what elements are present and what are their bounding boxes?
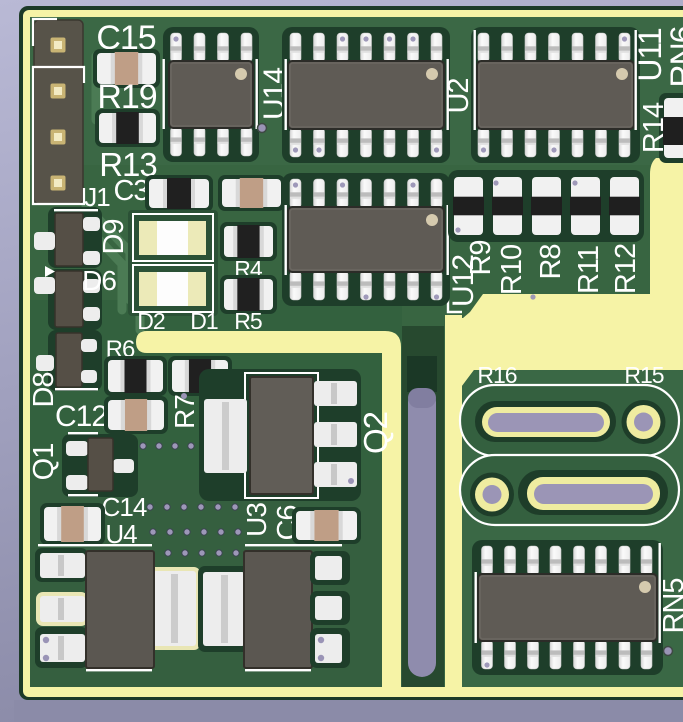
svg-text:D2: D2 [137,308,165,334]
svg-text:D1: D1 [190,308,218,334]
svg-text:R15: R15 [624,362,663,388]
svg-text:U11: U11 [632,28,668,82]
svg-text:R5: R5 [234,308,262,334]
svg-text:C12: C12 [55,400,107,433]
svg-text:R16: R16 [477,362,516,388]
svg-text:R11: R11 [573,246,605,294]
svg-text:D9: D9 [98,219,130,254]
svg-text:U2: U2 [443,78,475,113]
svg-text:C14: C14 [102,492,147,522]
svg-text:R7: R7 [169,395,200,429]
svg-text:RN6: RN6 [664,26,683,87]
svg-text:R8: R8 [535,244,567,279]
svg-text:R12: R12 [610,244,642,294]
svg-text:Q2: Q2 [357,412,394,454]
svg-text:R14: R14 [638,102,670,153]
svg-text:C3: C3 [113,175,148,207]
svg-text:R10: R10 [496,245,528,295]
svg-text:Q1: Q1 [28,444,60,481]
svg-text:RN5: RN5 [658,578,683,633]
svg-text:R9: R9 [465,240,497,275]
svg-text:U3: U3 [241,503,272,537]
svg-text:D6: D6 [82,265,116,296]
